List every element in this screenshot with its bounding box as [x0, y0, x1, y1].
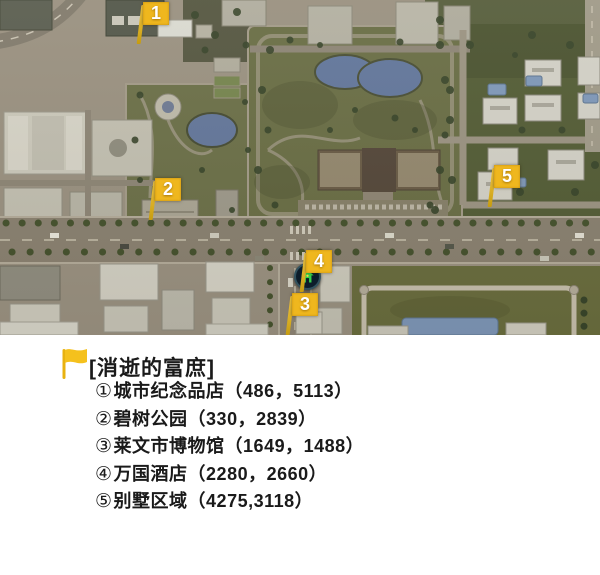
- flag-banner: 2: [155, 178, 181, 201]
- legend-header: [消逝的富庶]: [60, 347, 215, 382]
- map-marker-2[interactable]: 2: [150, 178, 182, 222]
- legend-list: ①城市纪念品店（486，5113） ②碧树公园（330，2839） ③莱文市博物…: [95, 378, 364, 516]
- flag-banner: 1: [143, 2, 169, 25]
- legend-item-3: ③莱文市博物馆（1649，1488）: [95, 433, 364, 461]
- item-name: 万国酒店: [114, 464, 188, 484]
- item-name: 莱文市博物馆: [114, 436, 225, 456]
- map-marker-3[interactable]: 3: [287, 293, 319, 337]
- map-marker-5[interactable]: 5: [489, 165, 521, 209]
- legend-item-5: ⑤别墅区域（4275,3118）: [95, 488, 364, 516]
- flag-banner: 4: [306, 250, 332, 273]
- park-pond: [187, 113, 237, 147]
- item-number: ④: [95, 464, 113, 485]
- game-map[interactable]: 1 2 3 4 5: [0, 0, 600, 335]
- main-road: [0, 216, 600, 264]
- item-coords: （330，2839）: [188, 409, 317, 429]
- legend-title: [消逝的富庶]: [89, 347, 215, 382]
- item-coords: （4275,3118）: [188, 491, 314, 511]
- flag-banner: 5: [494, 165, 520, 188]
- item-coords: （2280，2660）: [188, 464, 328, 484]
- item-coords: （1649，1488）: [225, 436, 365, 456]
- compound-pool: [402, 318, 498, 335]
- screenshot: 1 2 3 4 5: [0, 0, 600, 575]
- item-coords: （486，5113）: [225, 381, 353, 401]
- legend-panel: [消逝的富庶] ①城市纪念品店（486，5113） ②碧树公园（330，2839…: [0, 335, 600, 575]
- flag-banner: 3: [292, 293, 318, 316]
- item-name: 城市纪念品店: [114, 381, 225, 401]
- map-marker-1[interactable]: 1: [138, 2, 170, 46]
- map-marker-4[interactable]: 4: [301, 250, 333, 294]
- hotel-compound: [352, 266, 600, 335]
- legend-item-1: ①城市纪念品店（486，5113）: [95, 378, 364, 406]
- legend-item-2: ②碧树公园（330，2839）: [95, 406, 364, 434]
- legend-item-4: ④万国酒店（2280，2660）: [95, 461, 364, 489]
- legend-flag-icon: [60, 347, 88, 381]
- item-number: ⑤: [95, 491, 113, 512]
- central-park: [248, 26, 462, 226]
- item-name: 别墅区域: [114, 491, 188, 511]
- item-name: 碧树公园: [114, 409, 188, 429]
- item-number: ①: [95, 381, 113, 402]
- item-number: ②: [95, 409, 113, 430]
- item-number: ③: [95, 436, 113, 457]
